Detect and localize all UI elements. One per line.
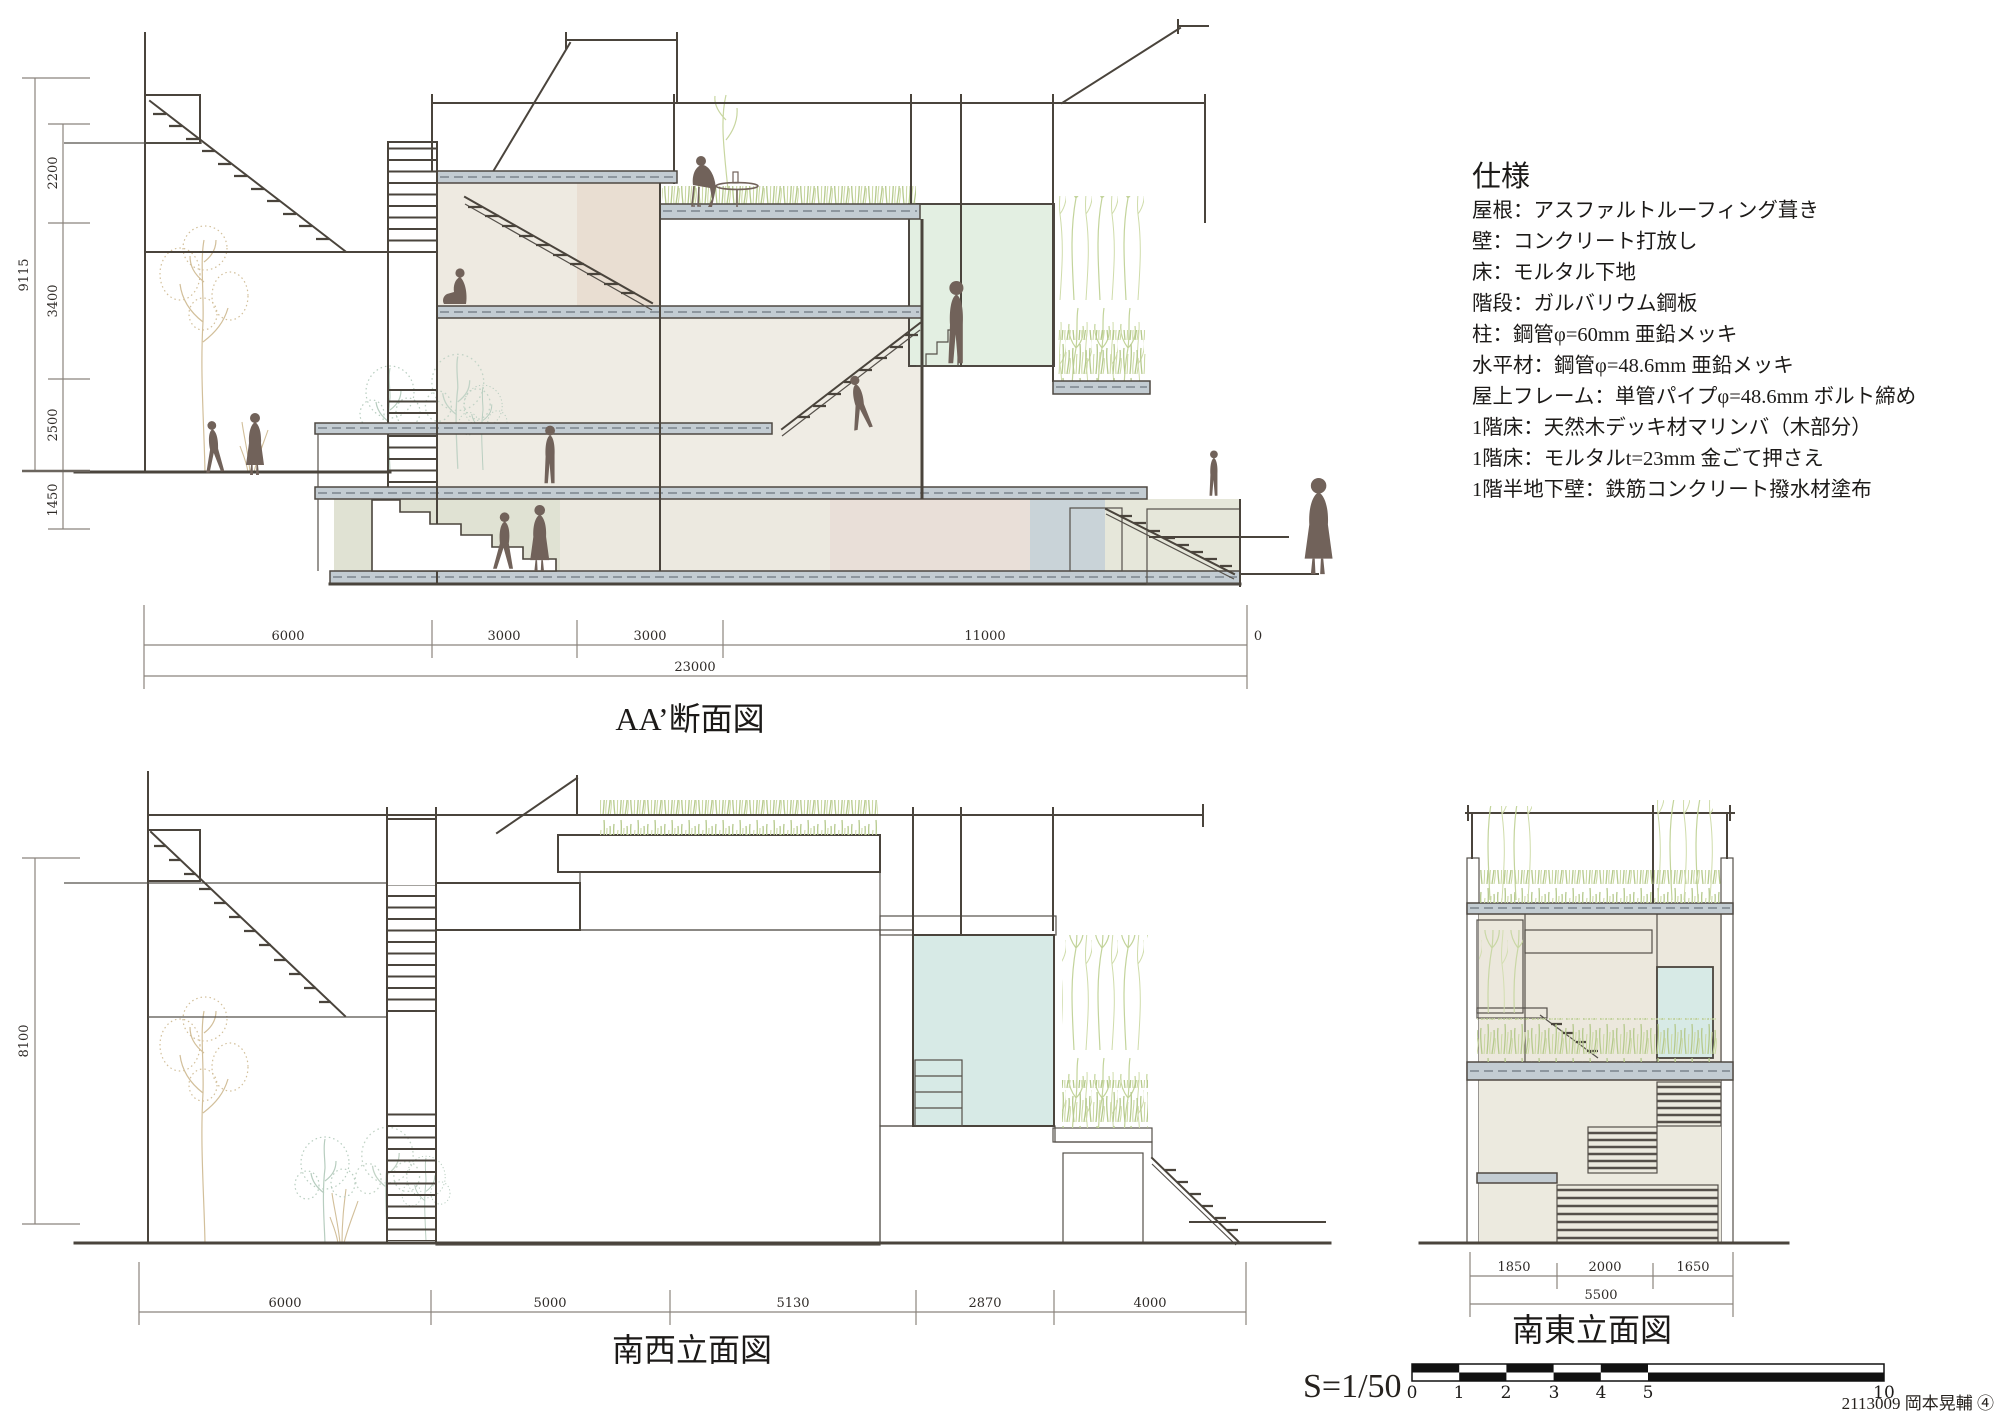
dim-11000: 11000 xyxy=(964,629,1005,644)
sw-door xyxy=(1063,1153,1143,1243)
sw-glass-panel xyxy=(913,935,1054,1126)
scale-label: S=1/50 xyxy=(1303,1368,1402,1405)
spec-item-roof: 屋根：アスファルトルーフィング葺き xyxy=(1472,199,1819,222)
scale-bar: S=1/50 0 1 2 3 4 5 10 xyxy=(1303,1364,1895,1405)
se-title: 南東立面図 xyxy=(1512,1312,1672,1348)
sw-roof-brace xyxy=(497,778,577,833)
dim-2500: 2500 xyxy=(46,408,61,441)
spec-item-wall: 壁：コンクリート打放し xyxy=(1472,230,1698,253)
section-glass-panel xyxy=(909,204,1054,366)
elevation-sw-drawing: 8100 6000 5000 5130 2870 4000 南西立面図 xyxy=(17,772,1330,1368)
section-dim-bottom: 6000 3000 3000 11000 0 23000 xyxy=(144,605,1262,689)
d im-8100: 8100 xyxy=(17,1024,32,1057)
se-dims: 1850 2000 1650 5500 xyxy=(1470,1252,1733,1317)
sw-exterior-stair xyxy=(64,772,436,1243)
section-dim-left: 9115 2200 3400 2500 1450 xyxy=(17,78,90,529)
scale-3: 3 xyxy=(1549,1383,1560,1403)
sw-dim-left: 8100 xyxy=(17,858,80,1224)
dim-zero: 0 xyxy=(1254,629,1262,644)
dim-9115: 9115 xyxy=(17,258,32,291)
se-dim-1850: 1850 xyxy=(1497,1260,1530,1275)
spec-item-1f-mortar: 1階床：モルタルt=23mm 金ごて押さえ xyxy=(1472,447,1824,470)
dim-2200: 2200 xyxy=(46,156,61,189)
se-dim-1650: 1650 xyxy=(1676,1260,1709,1275)
drawing-sheet: 9115 2200 3400 2500 1450 6000 3000 3000 … xyxy=(0,0,2000,1413)
section-aa-drawing: 9115 2200 3400 2500 1450 6000 3000 3000 … xyxy=(17,20,1333,737)
dim-1450: 1450 xyxy=(46,483,61,516)
se-dim-5500: 5500 xyxy=(1584,1288,1617,1303)
scale-2: 2 xyxy=(1501,1383,1512,1403)
spec-item-roofframe: 屋上フレーム：単管パイプφ=48.6mm ボルト締め xyxy=(1472,385,1916,408)
spec-item-basement: 1階半地下壁：鉄筋コンクリート撥水材塗布 xyxy=(1472,478,1872,501)
scale-bar-graphic xyxy=(1412,1364,1884,1381)
scale-5: 5 xyxy=(1643,1383,1654,1403)
elevation-se-drawing: 1850 2000 1650 5500 南東立面図 xyxy=(1420,800,1788,1348)
spec-item-1f-deck: 1階床：天然木デッキ材マリンバ（木部分） xyxy=(1472,416,1872,439)
dim-3400: 3400 xyxy=(46,284,61,317)
dim-23000: 23000 xyxy=(674,660,715,675)
section-title: AA’断面図 xyxy=(615,701,764,737)
spec-title: 仕様 xyxy=(1472,160,1530,193)
sw-dim-2870: 2870 xyxy=(968,1296,1001,1311)
sw-dim-5130: 5130 xyxy=(776,1296,809,1311)
spec-item-horizontal: 水平材：鋼管φ=48.6mm 亜鉛メッキ xyxy=(1472,354,1794,377)
dim-6000: 6000 xyxy=(271,629,304,644)
sw-right-stair xyxy=(1152,1158,1325,1245)
credit-text: 2113009 岡本晃輔 ④ xyxy=(1842,1394,1994,1413)
sw-dim-4000: 4000 xyxy=(1133,1296,1166,1311)
drawing-canvas: 9115 2200 3400 2500 1450 6000 3000 3000 … xyxy=(0,0,2000,1413)
spec-block: 仕様 屋根：アスファルトルーフィング葺き 壁：コンクリート打放し 床：モルタル下… xyxy=(1472,160,1916,501)
dim-3000b: 3000 xyxy=(633,629,666,644)
sw-dim-bottom: 6000 5000 5130 2870 4000 xyxy=(139,1262,1246,1325)
se-dim-2000: 2000 xyxy=(1588,1260,1621,1275)
sw-title: 南西立面図 xyxy=(612,1332,772,1368)
spec-item-column: 柱：鋼管φ=60mm 亜鉛メッキ xyxy=(1472,323,1737,346)
spec-item-floor: 床：モルタル下地 xyxy=(1472,261,1636,284)
sw-dim-5000: 5000 xyxy=(533,1296,566,1311)
scale-0: 0 xyxy=(1407,1383,1418,1403)
scale-1: 1 xyxy=(1454,1383,1465,1403)
spec-item-stair: 階段：ガルバリウム鋼板 xyxy=(1472,292,1698,315)
sw-roof-frame xyxy=(148,776,1203,935)
dim-3000a: 3000 xyxy=(487,629,520,644)
scale-4: 4 xyxy=(1596,1383,1607,1403)
sw-dim-6000: 6000 xyxy=(268,1296,301,1311)
roof-brace-right xyxy=(1062,28,1180,103)
roof-brace-left xyxy=(494,43,570,170)
